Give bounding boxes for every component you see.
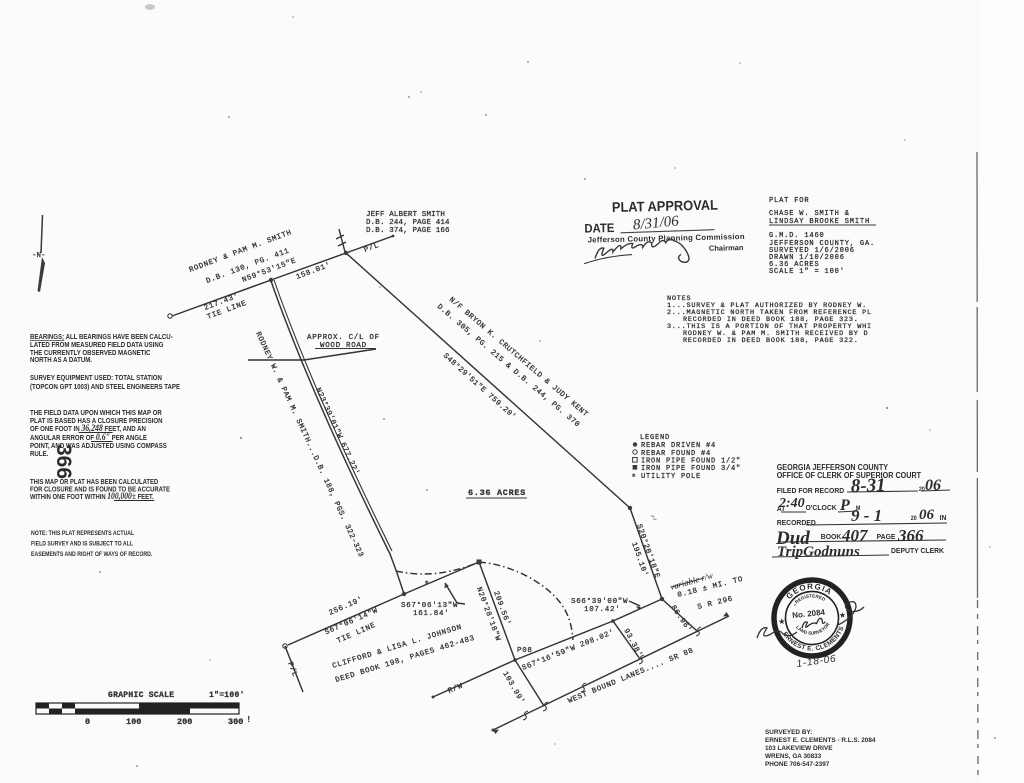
svg-text:REBAR DRIVEN #4: REBAR DRIVEN #4: [641, 442, 716, 450]
svg-text:S66°39'00"W: S66°39'00"W: [571, 597, 628, 606]
svg-text:ERNEST E. CLEMENTS - R.L.S. 20: ERNEST E. CLEMENTS - R.L.S. 2084: [765, 737, 876, 744]
svg-text:DEPUTY CLERK: DEPUTY CLERK: [891, 546, 945, 555]
svg-text:200: 200: [177, 717, 192, 727]
svg-text:★: ★: [778, 617, 786, 627]
svg-text:THE FIELD DATA UPON WHICH THIS: THE FIELD DATA UPON WHICH THIS MAP OR: [30, 410, 162, 417]
svg-text:161.84': 161.84': [413, 610, 449, 618]
svg-text:06: 06: [925, 477, 941, 494]
svg-text:PLAT FOR: PLAT FOR: [769, 197, 809, 205]
svg-text:8-31: 8-31: [850, 475, 886, 497]
svg-text:300: 300: [228, 717, 243, 727]
svg-text:FOR CLOSURE AND IS FOUND TO BE: FOR CLOSURE AND IS FOUND TO BE ACCURATE: [30, 486, 171, 494]
svg-text:JEFF ALBERT SMITH: JEFF ALBERT SMITH: [366, 211, 445, 219]
svg-text:IN: IN: [940, 513, 947, 522]
svg-text:!: !: [246, 715, 251, 725]
svg-text:103 LAKEVIEW DRIVE: 103 LAKEVIEW DRIVE: [765, 745, 833, 752]
svg-text:NOTE: THIS PLAT REPRESENTS ACT: NOTE: THIS PLAT REPRESENTS ACTUAL: [31, 531, 135, 538]
svg-text:LATED FROM MEASURED FIELD DATA: LATED FROM MEASURED FIELD DATA USING: [30, 342, 163, 349]
svg-text:BEARINGS: ALL BEARINGS HAVE BE: BEARINGS: ALL BEARINGS HAVE BEEN CALCU-: [30, 334, 173, 341]
svg-text:GRAPHIC SCALE: GRAPHIC SCALE: [108, 691, 174, 700]
svg-text:FILED FOR RECORD: FILED FOR RECORD: [777, 486, 845, 495]
svg-text:RULE.: RULE.: [30, 451, 48, 458]
svg-text:20: 20: [919, 487, 925, 493]
svg-text:IRON PIPE FOUND 3/4": IRON PIPE FOUND 3/4": [641, 465, 741, 473]
svg-text:FIELD SURVEY AND IS SUBJECT TO: FIELD SURVEY AND IS SUBJECT TO ALL: [31, 541, 133, 548]
svg-text:CHASE W. SMITH &: CHASE W. SMITH &: [769, 210, 850, 218]
svg-text:RECORDED: RECORDED: [777, 518, 816, 527]
svg-text:SCALE 1" = 100': SCALE 1" = 100': [769, 268, 845, 276]
svg-text:100: 100: [126, 717, 141, 727]
svg-text:407: 407: [841, 526, 869, 545]
svg-text:*: *: [631, 473, 636, 483]
svg-text:TripGodnuns: TripGodnuns: [777, 544, 860, 560]
svg-text:SURVEYED BY:: SURVEYED BY:: [765, 729, 812, 736]
svg-text:PAGE: PAGE: [877, 532, 896, 541]
svg-text:EASEMENTS AND RIGHT OF WAYS OF: EASEMENTS AND RIGHT OF WAYS OF RECORD.: [31, 552, 153, 559]
svg-text:BOOK: BOOK: [821, 532, 842, 541]
svg-text:107.42': 107.42': [584, 606, 620, 614]
svg-text:G.M.D. 1460: G.M.D. 1460: [769, 232, 825, 240]
svg-text:UTILITY POLE: UTILITY POLE: [641, 473, 701, 481]
svg-text:D.B. 374, PAGE 166: D.B. 374, PAGE 166: [366, 227, 450, 235]
svg-text:RECORDED IN DEED BOOK 188, PAG: RECORDED IN DEED BOOK 188, PAGE 322.: [683, 337, 859, 345]
svg-text:D.B. 244, PAGE 414: D.B. 244, PAGE 414: [366, 219, 450, 227]
svg-text:9 - 1: 9 - 1: [851, 506, 882, 525]
svg-text:-N-: -N-: [32, 252, 46, 260]
svg-text:0: 0: [85, 717, 90, 727]
svg-text:2:40: 2:40: [778, 496, 805, 511]
svg-text:6.36 ACRES: 6.36 ACRES: [468, 488, 526, 498]
svg-text:WRENS, GA 30833: WRENS, GA 30833: [765, 753, 822, 760]
svg-text:OFFICE OF CLERK OF SUPERIOR CO: OFFICE OF CLERK OF SUPERIOR COURT: [777, 471, 922, 480]
svg-text:PLAT APPROVAL: PLAT APPROVAL: [612, 197, 719, 215]
svg-text:1"=100': 1"=100': [209, 691, 245, 700]
svg-text:06: 06: [919, 507, 935, 523]
svg-text:*: *: [424, 580, 429, 590]
svg-text:★: ★: [838, 610, 846, 620]
svg-text:P08: P08: [517, 647, 533, 655]
svg-text:366: 366: [897, 526, 924, 545]
svg-text:NORTH AS A DATUM.: NORTH AS A DATUM.: [30, 357, 92, 364]
svg-text:O'CLOCK: O'CLOCK: [806, 503, 838, 512]
svg-text:WITHIN ONE FOOT WITHIN 100,000: WITHIN ONE FOOT WITHIN 100,000± FEET.: [30, 491, 154, 501]
svg-text:SURVEY EQUIPMENT USED: TOTAL S: SURVEY EQUIPMENT USED: TOTAL STATION: [30, 375, 162, 382]
svg-text:S67°06'13"W: S67°06'13"W: [401, 601, 458, 610]
svg-text:20: 20: [911, 516, 917, 522]
svg-text:P: P: [839, 497, 850, 514]
svg-text:APPROX. C/L OF: APPROX. C/L OF: [307, 334, 380, 342]
svg-text:THIS MAP OR PLAT HAS BEEN CALC: THIS MAP OR PLAT HAS BEEN CALCULATED: [30, 479, 158, 487]
svg-text:(TOPCON GPT 1003) AND STEEL EN: (TOPCON GPT 1003) AND STEEL ENGINEERS TA…: [30, 384, 181, 391]
svg-text:POINT, AND WAS ADJUSTED USING: POINT, AND WAS ADJUSTED USING COMPASS: [30, 443, 167, 450]
svg-text:Chairman: Chairman: [709, 243, 744, 253]
svg-text:PHONE 706-547-2397: PHONE 706-547-2397: [765, 761, 830, 768]
svg-text:LEGEND: LEGEND: [640, 434, 670, 442]
svg-text:DATE: DATE: [584, 221, 614, 236]
